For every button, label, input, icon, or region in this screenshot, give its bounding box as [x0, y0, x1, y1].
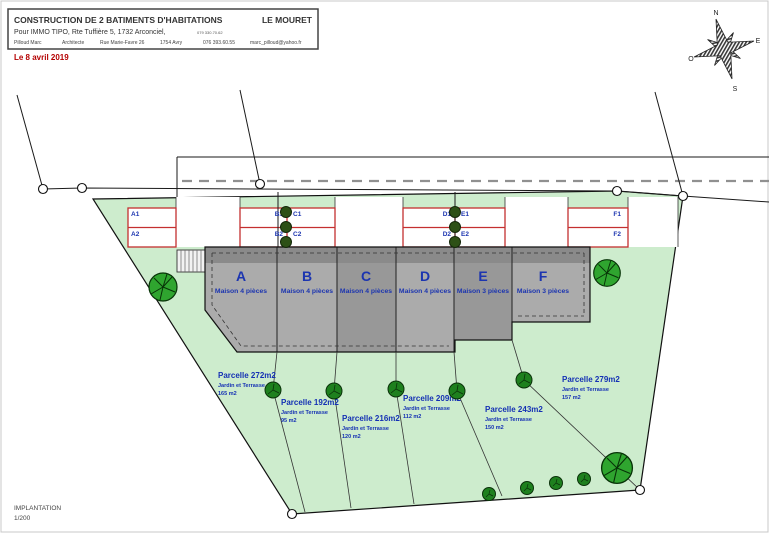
architect-role: Architecte [62, 40, 84, 46]
parcel-3-sub: Jardin et Terrasse [342, 426, 389, 432]
parcel-1-name: Parcelle 272m2 [218, 371, 276, 380]
compass-north-label: N [713, 10, 718, 17]
tree [594, 260, 621, 287]
stall-label-a1: A1 [131, 211, 140, 218]
hedge-bush [450, 207, 461, 218]
architect-name: Pilloud Marc [14, 40, 42, 46]
stall-label-c1: C1 [293, 211, 302, 218]
compass-west-label: O [688, 56, 694, 63]
stairs [177, 250, 205, 272]
unit-d-type: Maison 4 pièces [399, 288, 451, 295]
parcel-5-sub: Jardin et Terrasse [485, 417, 532, 423]
hedge-bush [281, 222, 292, 233]
unit-b-letter: B [302, 268, 312, 284]
unit-f-letter: F [539, 268, 548, 284]
bush [521, 482, 534, 495]
site-plan-drawing: A1 A2 B1 B2 C1 C2 D1 D2 E1 E2 F1 F2 A Ma… [0, 0, 769, 533]
bush [388, 381, 404, 397]
unit-c-type: Maison 4 pièces [340, 288, 392, 295]
architect-phone: 076 393.60.55 [203, 40, 235, 46]
architect-street: Rue Marie-Favre 26 [100, 40, 145, 46]
parcel-1-sub: Jardin et Terrasse [218, 383, 265, 389]
unit-b-type: Maison 4 pièces [281, 288, 333, 295]
drawing-name: IMPLANTATION [14, 505, 61, 512]
parcel-6-sub: Jardin et Terrasse [562, 387, 609, 393]
parcel-6-area: 157 m2 [562, 395, 581, 401]
project-location: LE MOURET [262, 15, 313, 25]
parcel-5-area: 150 m2 [485, 425, 504, 431]
bush [326, 383, 342, 399]
unit-f-type: Maison 3 pièces [517, 288, 569, 295]
stall-label-e2: E2 [461, 231, 469, 238]
stall-label-f1: F1 [613, 211, 621, 218]
road [177, 157, 769, 197]
parcel-1-area: 165 m2 [218, 391, 237, 397]
bush [578, 473, 591, 486]
stall-label-a2: A2 [131, 231, 140, 238]
stall-label-d2: D2 [443, 231, 452, 238]
architect-city: 1754 Avry [160, 40, 183, 46]
unit-c-letter: C [361, 268, 371, 284]
building-top-band [205, 247, 590, 263]
bush [483, 488, 496, 501]
unit-a-letter: A [236, 268, 246, 284]
bush [516, 372, 532, 388]
compass-south-label: S [733, 86, 738, 93]
unit-e-letter: E [478, 268, 487, 284]
parcel-4-sub: Jardin et Terrasse [403, 406, 450, 412]
road-edge-line [177, 157, 769, 197]
plan-date: Le 8 avril 2019 [14, 53, 69, 62]
tree [149, 273, 177, 301]
bush [550, 477, 563, 490]
hedge-bush [450, 237, 461, 248]
site-plan-page: A1 A2 B1 B2 C1 C2 D1 D2 E1 E2 F1 F2 A Ma… [0, 0, 769, 533]
stall-label-f2: F2 [613, 231, 621, 238]
hedge-bush [281, 207, 292, 218]
client-line: Pour IMMO TIPO, Rte Tuffière 5, 1732 Arc… [14, 29, 166, 36]
drawing-scale: 1/200 [14, 515, 31, 522]
parcel-2-name: Parcelle 192m2 [281, 398, 339, 407]
parcel-3-name: Parcelle 216m2 [342, 414, 400, 423]
compass-east-label: E [756, 38, 761, 45]
stall-label-b2: B2 [275, 231, 284, 238]
unit-a-type: Maison 4 pièces [215, 288, 267, 295]
hedge-bush [281, 237, 292, 248]
stall-label-c2: C2 [293, 231, 302, 238]
title-block: CONSTRUCTION DE 2 BATIMENTS D'HABITATION… [8, 9, 318, 49]
architect-email: marc_pilloud@yahoo.fr [250, 40, 302, 46]
parcel-2-sub: Jardin et Terrasse [281, 410, 328, 416]
project-title: CONSTRUCTION DE 2 BATIMENTS D'HABITATION… [14, 15, 223, 25]
compass-star-icon [686, 11, 762, 87]
stall-label-e1: E1 [461, 211, 469, 218]
unit-d-letter: D [420, 268, 430, 284]
parcel-3-area: 120 m2 [342, 434, 361, 440]
bush [265, 382, 281, 398]
survey-lines [17, 90, 683, 196]
parcel-2-area: 95 m2 [281, 418, 297, 424]
client-phone: 079 330.70.62 [197, 30, 223, 35]
compass-rose: N E S O [686, 10, 762, 93]
hedge-bush [450, 222, 461, 233]
drawing-footer: IMPLANTATION 1/200 [14, 505, 61, 522]
unit-e-type: Maison 3 pièces [457, 288, 509, 295]
parcel-4-area: 112 m2 [403, 414, 421, 420]
tree [602, 453, 633, 484]
parcel-5-name: Parcelle 243m2 [485, 405, 543, 414]
parcel-6-name: Parcelle 279m2 [562, 375, 620, 384]
bush [449, 383, 465, 399]
